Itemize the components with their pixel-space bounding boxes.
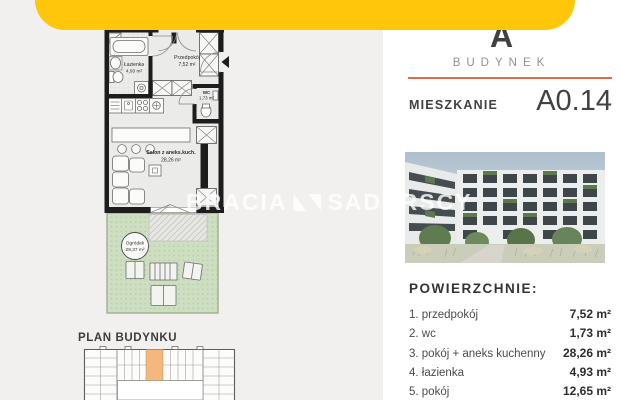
area-label: 3. pokój + aneks kuchenny — [409, 348, 546, 360]
apartment-number: A0.14 — [536, 87, 612, 116]
kitchen-counter — [109, 99, 164, 114]
area-label: 4. łazienka — [409, 367, 464, 379]
kitchen-island — [112, 128, 190, 142]
area-label: 2. wc — [409, 328, 436, 340]
bathroom-name: Łazienka — [124, 62, 144, 68]
area-value: 4,93 m² — [570, 365, 611, 379]
area-label: 1. przedpokój — [409, 309, 478, 321]
side-table — [149, 165, 161, 176]
accent-divider — [408, 77, 612, 79]
watermark-text-right: SADURSCY — [327, 189, 472, 216]
brand-logo-icon — [308, 194, 321, 211]
area-row: 3. pokój + aneks kuchenny 28,26 m² — [409, 346, 611, 365]
area-row: 1. przedpokój 7,52 m² — [409, 307, 611, 326]
apartment-label: MIESZKANIE — [409, 98, 498, 116]
terrace — [149, 215, 207, 242]
hall-wardrobe-top-right — [200, 33, 219, 77]
hall-closet — [153, 81, 192, 96]
building-label: BUDYNEK — [383, 57, 620, 69]
area-value: 1,73 m² — [570, 326, 611, 340]
bathroom-sink — [111, 57, 121, 69]
garden-area: Ogródek 28,37 m² — [107, 213, 218, 313]
bathroom-toilet — [113, 72, 123, 83]
areas-title: POWIERZCHNIE: — [409, 281, 538, 296]
area-row: 5. pokój 12,65 m² — [409, 384, 611, 400]
brand-watermark: BRACIA SADURSCY — [186, 189, 473, 216]
area-row: 2. wc 1,73 m² — [409, 326, 611, 345]
building-plan: PLAN BUDYNKU — [78, 332, 235, 400]
garden-name: Ogródek — [126, 241, 145, 247]
highlighted-unit — [146, 350, 163, 381]
entrance-arrow-icon — [222, 56, 230, 68]
hallway-area: 7,52 m² — [179, 62, 196, 68]
area-row: 4. łazienka 4,93 m² — [409, 365, 611, 384]
hallway-name: Przedpokój — [174, 55, 200, 61]
listing-card: Ogródek 28,37 m² — [0, 0, 620, 400]
area-value: 12,65 m² — [563, 384, 611, 398]
wc-name: WC — [203, 90, 211, 95]
living-area: 28,26 m² — [161, 158, 181, 164]
apartment-row: MIESZKANIE A0.14 — [409, 86, 612, 116]
brand-top-bar — [35, 0, 575, 30]
living-name: Salon z aneks.kuch. — [146, 150, 196, 156]
living-wardrobe-upper — [197, 127, 217, 144]
area-value: 28,26 m² — [563, 346, 611, 360]
area-value: 7,52 m² — [570, 307, 611, 321]
garden-area-value: 28,37 m² — [126, 247, 145, 253]
shaft-wall — [201, 144, 209, 188]
bathroom-area: 4,93 m² — [126, 69, 143, 75]
watermark-text-left: BRACIA — [186, 189, 287, 216]
building-plan-title: PLAN BUDYNKU — [78, 332, 177, 344]
areas-list: 1. przedpokój 7,52 m² 2. wc 1,73 m² 3. p… — [409, 307, 611, 400]
area-label: 5. pokój — [409, 386, 449, 398]
stool — [118, 145, 127, 154]
courtyard — [118, 381, 204, 400]
brand-logo-icon — [293, 194, 306, 211]
wc-area: 1,73 m² — [199, 96, 214, 101]
